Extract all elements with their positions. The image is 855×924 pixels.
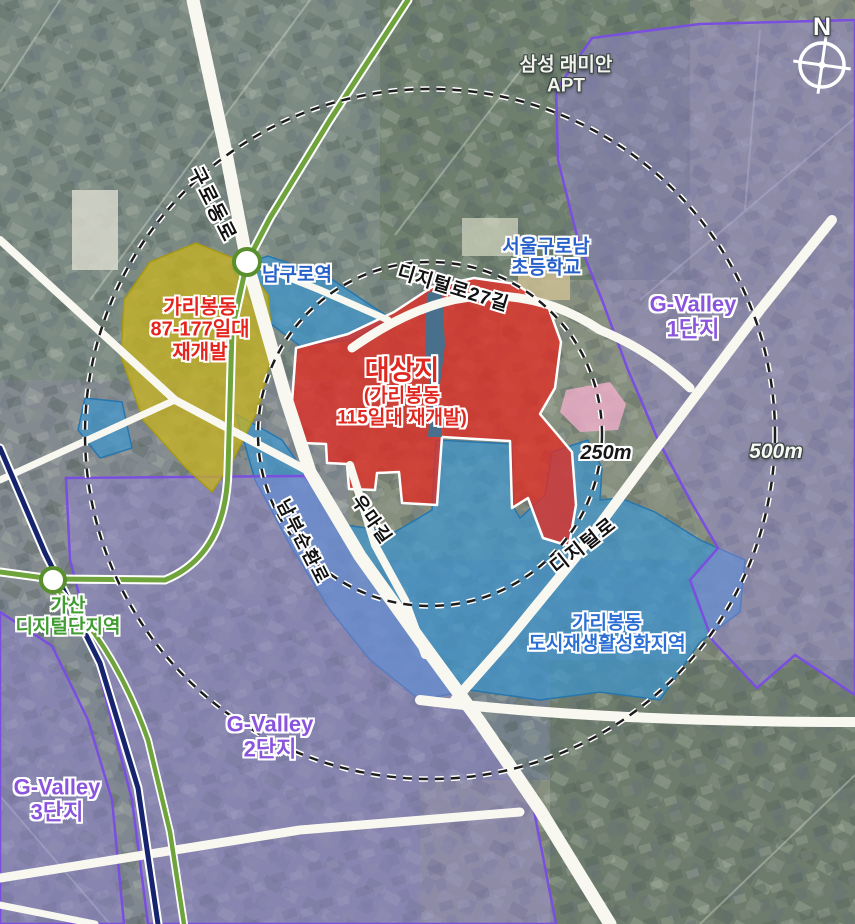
map-screenshot: 삼성 래미안 APT N 구로동로 남구로역 가리봉동 87-177일대 재개발… (0, 0, 855, 924)
field-patch (462, 218, 518, 256)
schoolyard-patch (72, 190, 118, 270)
satellite-map (0, 0, 855, 924)
gasan-station-marker (41, 568, 65, 592)
namguro-station-marker (234, 249, 260, 275)
